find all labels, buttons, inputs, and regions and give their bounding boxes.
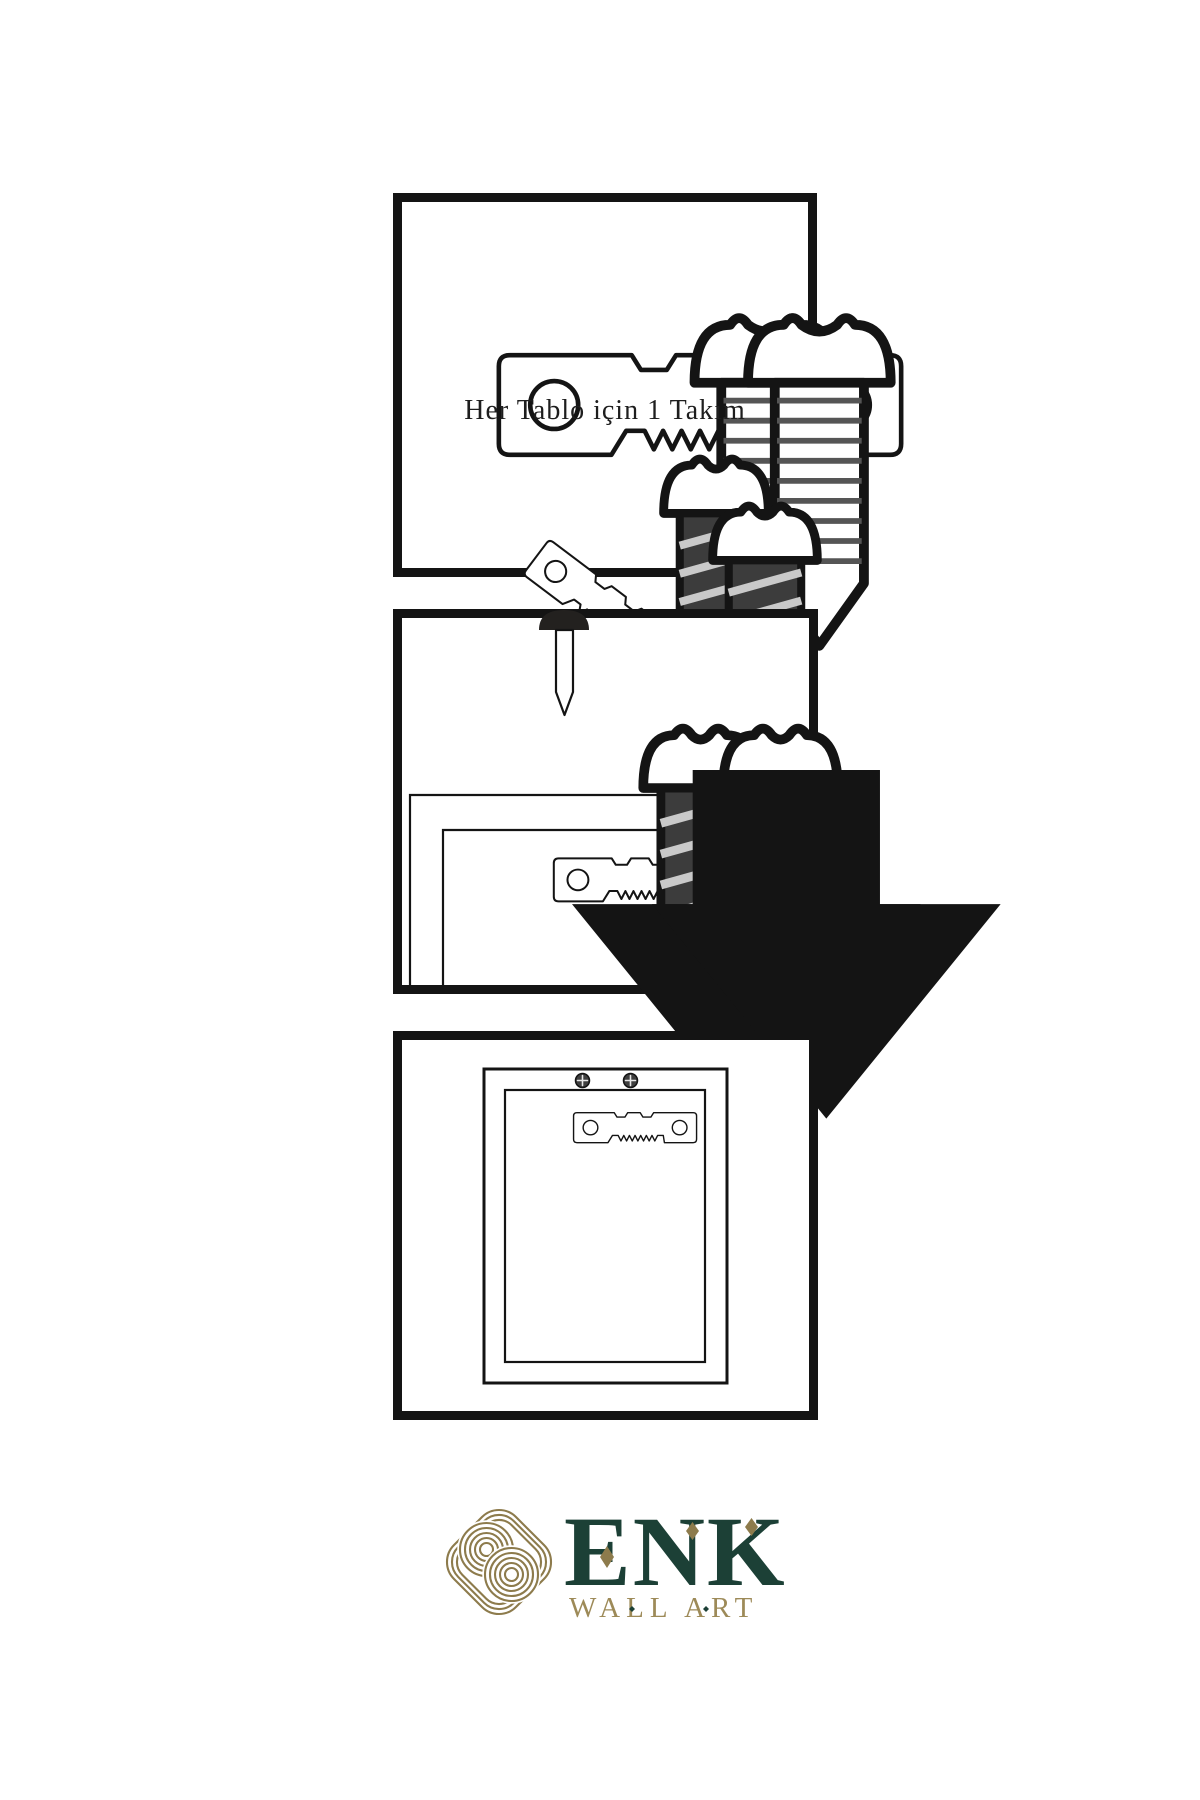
green-dot-ornament bbox=[629, 1606, 635, 1612]
gold-diamond-ornament bbox=[600, 1546, 614, 1568]
step-2-mounting-panel bbox=[393, 609, 818, 994]
nail-icon bbox=[539, 610, 589, 715]
step-1-hardware-kit-panel: Her Tablo için 1 Takım bbox=[393, 193, 817, 577]
kit-caption: Her Tablo için 1 Takım bbox=[402, 395, 808, 427]
step-3-hanging-panel bbox=[393, 1031, 818, 1420]
brand-subtitle: WALL ART bbox=[569, 1592, 758, 1625]
gold-diamond-ornament bbox=[745, 1518, 758, 1536]
brand-title: ENK bbox=[564, 1502, 787, 1602]
knot-logo-icon bbox=[437, 1500, 561, 1624]
green-dot-ornament bbox=[703, 1606, 709, 1612]
gold-diamond-ornament bbox=[686, 1522, 699, 1540]
